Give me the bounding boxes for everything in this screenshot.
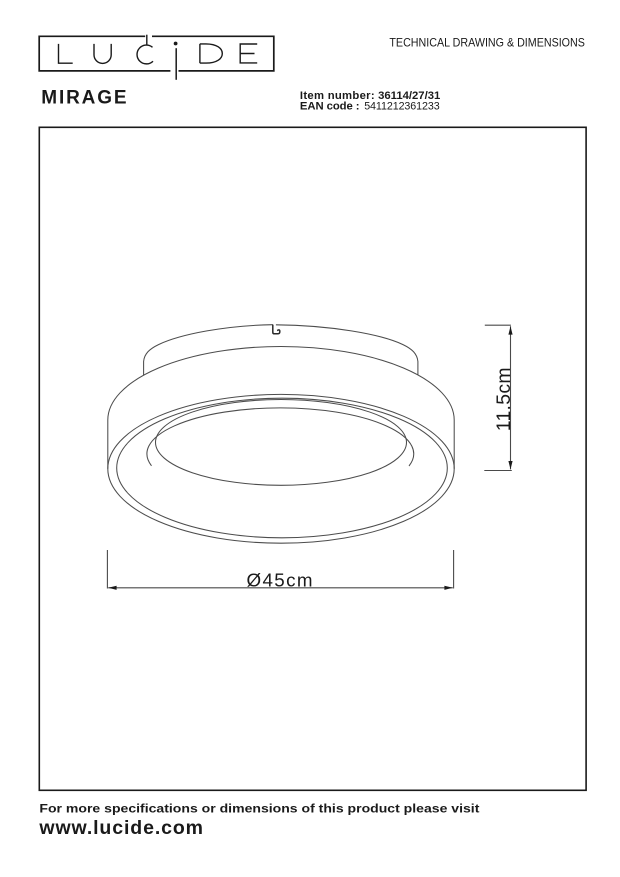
svg-text:Ø45cm: Ø45cm xyxy=(247,569,313,590)
svg-text:TECHNICAL DRAWING & DIMENSIONS: TECHNICAL DRAWING & DIMENSIONS xyxy=(389,36,585,50)
svg-text:11.5cm: 11.5cm xyxy=(493,368,515,432)
svg-text:MIRAGE: MIRAGE xyxy=(41,87,126,108)
svg-text:For more specifications or dim: For more specifications or dimensions of… xyxy=(39,802,479,816)
svg-text:EAN code :: EAN code : xyxy=(300,101,360,113)
svg-text:5411212361233: 5411212361233 xyxy=(364,101,440,113)
svg-text:www.lucide.com: www.lucide.com xyxy=(38,817,203,839)
